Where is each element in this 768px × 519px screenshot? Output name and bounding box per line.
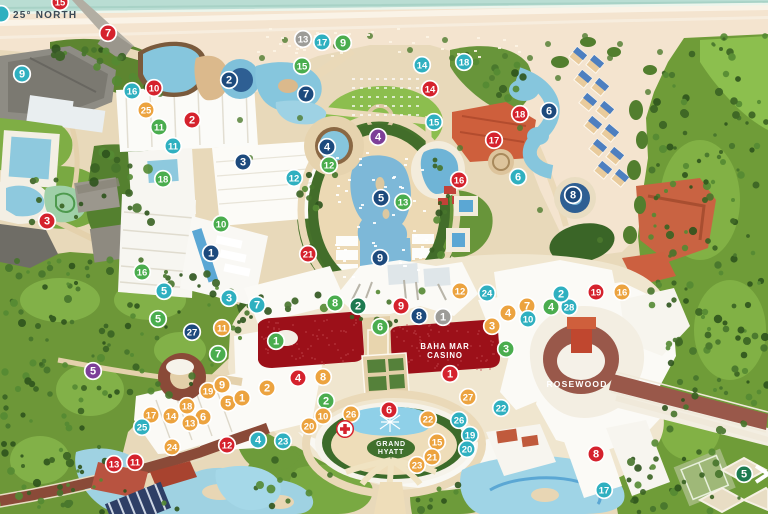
svg-text:18: 18 xyxy=(158,174,169,185)
svg-text:15: 15 xyxy=(429,117,440,128)
svg-text:22: 22 xyxy=(496,403,507,414)
svg-text:17: 17 xyxy=(489,135,500,146)
svg-text:1: 1 xyxy=(239,392,245,404)
svg-text:28: 28 xyxy=(564,302,575,313)
svg-text:16: 16 xyxy=(454,175,465,186)
svg-text:11: 11 xyxy=(154,122,165,133)
svg-text:11: 11 xyxy=(168,141,179,152)
svg-text:14: 14 xyxy=(417,60,428,71)
svg-text:2: 2 xyxy=(323,395,329,407)
svg-text:17: 17 xyxy=(599,485,610,496)
svg-text:GRAND: GRAND xyxy=(376,441,406,448)
svg-text:5: 5 xyxy=(378,192,384,204)
svg-text:6: 6 xyxy=(200,411,206,423)
svg-text:27: 27 xyxy=(463,392,474,403)
svg-text:5: 5 xyxy=(161,285,167,297)
svg-text:27: 27 xyxy=(187,327,198,338)
svg-text:10: 10 xyxy=(523,314,534,325)
svg-text:19: 19 xyxy=(465,430,476,441)
svg-text:12: 12 xyxy=(455,286,466,297)
svg-text:7: 7 xyxy=(215,348,221,360)
svg-text:15: 15 xyxy=(297,61,308,72)
svg-text:5: 5 xyxy=(741,468,747,480)
svg-text:4: 4 xyxy=(548,301,555,313)
svg-text:14: 14 xyxy=(425,84,436,95)
svg-text:2: 2 xyxy=(355,300,361,312)
svg-text:25° NORTH: 25° NORTH xyxy=(13,10,77,21)
svg-text:10: 10 xyxy=(318,411,329,422)
svg-text:9: 9 xyxy=(340,37,346,49)
svg-text:4: 4 xyxy=(324,141,331,153)
svg-text:5: 5 xyxy=(90,365,96,377)
svg-text:10: 10 xyxy=(216,219,227,230)
svg-text:21: 21 xyxy=(303,249,314,260)
svg-text:CASINO: CASINO xyxy=(427,351,463,360)
svg-text:12: 12 xyxy=(222,440,233,451)
svg-text:3: 3 xyxy=(503,343,509,355)
svg-text:3: 3 xyxy=(489,320,495,332)
svg-text:4: 4 xyxy=(375,131,382,143)
svg-text:8: 8 xyxy=(320,371,326,383)
svg-text:12: 12 xyxy=(289,173,300,184)
svg-text:4: 4 xyxy=(505,307,512,319)
svg-text:1: 1 xyxy=(273,335,279,347)
svg-text:19: 19 xyxy=(203,386,214,397)
svg-text:6: 6 xyxy=(546,105,552,117)
svg-text:26: 26 xyxy=(454,415,465,426)
svg-text:14: 14 xyxy=(166,411,177,422)
svg-text:6: 6 xyxy=(377,321,383,333)
svg-text:8: 8 xyxy=(593,448,599,460)
svg-text:13: 13 xyxy=(185,418,196,429)
svg-text:9: 9 xyxy=(398,300,404,312)
svg-text:HYATT: HYATT xyxy=(378,449,404,456)
svg-text:3: 3 xyxy=(44,215,50,227)
svg-text:25: 25 xyxy=(141,105,152,116)
svg-text:18: 18 xyxy=(515,109,526,120)
svg-text:9: 9 xyxy=(219,379,225,391)
svg-text:10: 10 xyxy=(149,83,160,94)
svg-text:3: 3 xyxy=(226,292,232,304)
svg-text:11: 11 xyxy=(130,457,141,468)
svg-text:1: 1 xyxy=(440,311,446,323)
svg-text:8: 8 xyxy=(570,189,576,201)
svg-text:26: 26 xyxy=(346,409,357,420)
svg-text:12: 12 xyxy=(324,160,335,171)
svg-text:5: 5 xyxy=(155,313,161,325)
svg-text:7: 7 xyxy=(105,27,111,39)
svg-text:21: 21 xyxy=(427,452,438,463)
svg-text:23: 23 xyxy=(412,460,423,471)
svg-text:18: 18 xyxy=(182,401,193,412)
svg-text:13: 13 xyxy=(109,459,120,470)
svg-text:9: 9 xyxy=(19,68,25,80)
svg-text:7: 7 xyxy=(303,88,309,100)
svg-text:4: 4 xyxy=(255,434,262,446)
svg-text:4: 4 xyxy=(295,372,302,384)
svg-text:2: 2 xyxy=(189,114,195,126)
svg-text:20: 20 xyxy=(462,444,473,455)
svg-text:1: 1 xyxy=(447,368,453,380)
svg-text:16: 16 xyxy=(127,86,138,97)
svg-text:8: 8 xyxy=(416,310,422,322)
svg-text:BAHA MAR: BAHA MAR xyxy=(420,342,469,351)
svg-text:24: 24 xyxy=(482,288,493,299)
svg-text:24: 24 xyxy=(167,442,178,453)
svg-text:20: 20 xyxy=(304,421,315,432)
svg-text:16: 16 xyxy=(617,287,628,298)
svg-text:5: 5 xyxy=(225,397,231,409)
svg-text:2: 2 xyxy=(226,74,232,86)
svg-text:6: 6 xyxy=(386,404,392,416)
svg-text:13: 13 xyxy=(398,197,409,208)
svg-text:18: 18 xyxy=(459,57,470,68)
svg-text:1: 1 xyxy=(208,247,214,259)
svg-text:22: 22 xyxy=(423,414,434,425)
svg-text:7: 7 xyxy=(254,299,260,311)
svg-text:17: 17 xyxy=(317,37,328,48)
svg-text:6: 6 xyxy=(515,171,521,183)
svg-text:19: 19 xyxy=(591,287,602,298)
svg-text:ROSEWOOD: ROSEWOOD xyxy=(546,379,607,389)
svg-text:15: 15 xyxy=(55,0,66,8)
svg-text:2: 2 xyxy=(264,382,270,394)
svg-text:11: 11 xyxy=(217,323,228,334)
svg-text:13: 13 xyxy=(298,34,309,45)
svg-text:9: 9 xyxy=(377,252,383,264)
svg-text:8: 8 xyxy=(332,297,338,309)
svg-text:23: 23 xyxy=(278,436,289,447)
svg-text:2: 2 xyxy=(558,288,564,300)
svg-text:3: 3 xyxy=(240,156,246,168)
svg-text:15: 15 xyxy=(432,437,443,448)
svg-text:16: 16 xyxy=(137,267,148,278)
svg-text:25: 25 xyxy=(137,422,148,433)
